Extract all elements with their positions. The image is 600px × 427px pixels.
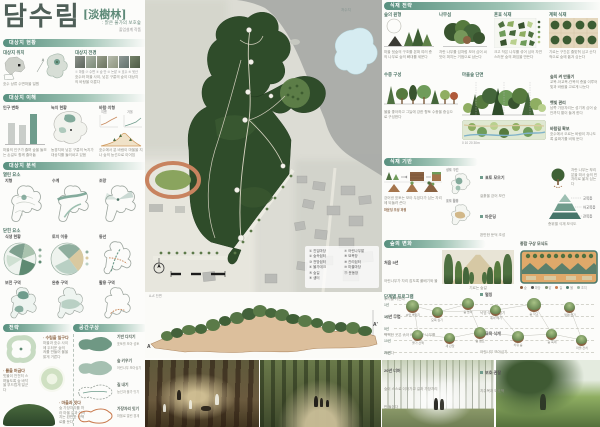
section-header-understanding: 대상지 이해 xyxy=(3,94,147,102)
zone-map-buffer xyxy=(50,286,92,322)
program-node xyxy=(406,300,419,313)
step-1-map xyxy=(75,334,115,354)
species-caption: 물을 좋아하고 그늘에 강한 향토 수종을 중심으로 구성한다 xyxy=(384,110,456,119)
step-4-map xyxy=(75,406,115,426)
program-node-label: 치유 숲 xyxy=(503,343,533,347)
left-column: 담수림 [淡樹林] : 맑은 물가의 보호숲 졸업설계 작품 대상지 현황 대상… xyxy=(3,2,143,425)
village-forest-scale: 0 10 20 30m xyxy=(462,141,546,145)
circulation-map xyxy=(97,240,139,278)
layer-pyramid-diagram: 교목층 아교목층 관목층 xyxy=(548,192,598,220)
legend-dot xyxy=(555,286,558,289)
korea-map xyxy=(3,56,33,80)
map-legend: ① 진입마당 ② 숲속쉼터 ③ 전망쉼터 ④ 물가데크 ⑤ 숲길 ⑥ 샘터 ⑦ … xyxy=(305,246,379,288)
section-header-analysis: 대상지 분석 xyxy=(3,162,147,170)
mosaic-legend-item: 마당 xyxy=(531,286,541,290)
program-node xyxy=(462,298,474,310)
bullet-square-icon xyxy=(480,215,483,218)
bullet-square-icon xyxy=(480,371,483,374)
note-text: 남쪽 가장자리는 성기게 심어 숲 안까지 볕이 들게 한다 xyxy=(550,106,598,115)
chart1-caption: 마을의 인구가 줄며 숲을 돌보는 손길도 함께 줄어듦 xyxy=(3,148,47,157)
program-node-label: 새 관찰 xyxy=(435,344,465,348)
allee-tree xyxy=(482,272,487,284)
program-node xyxy=(576,335,587,346)
title-block: 담수림 [淡樹林] : 맑은 물가의 보호숲 졸업설계 작품 xyxy=(3,2,143,36)
pyramid-caption: 층위별 식재 모식도 xyxy=(548,222,598,227)
program-node-label: 솎아 베기 xyxy=(481,316,511,320)
program-node-label: 숲 축제 xyxy=(537,340,567,344)
bullet-title: 보호·관찰 xyxy=(485,370,501,375)
site-photo-strip xyxy=(75,56,141,68)
lake-label: 저수지 xyxy=(341,8,351,13)
grid-planting-plan xyxy=(549,18,598,48)
para-title: 20년 너머 xyxy=(384,368,401,373)
figure xyxy=(326,400,329,407)
design-board: 담수림 [淡樹林] : 맑은 물가의 보호숲 졸업설계 작품 대상지 현황 대상… xyxy=(0,0,600,427)
analysis-map-view xyxy=(97,184,139,224)
section-marker-a: A xyxy=(147,344,151,350)
site-photo xyxy=(75,56,85,68)
program-node-label: 숲 학교 xyxy=(519,312,549,316)
analysis-map-water xyxy=(50,184,92,224)
allee-tree xyxy=(494,261,501,284)
transplant-note: 자란 나무는 뿌리분을 떠서 숲의 빈자리로 옮겨 심는다 xyxy=(571,168,598,187)
figure xyxy=(163,404,166,412)
wind-chart-summer xyxy=(99,114,119,128)
fill-zone-map xyxy=(446,173,476,195)
program-node xyxy=(474,327,486,339)
strategy-1-text: 마을과 호수 사이에 두터운 숲의 켜를 만들어 물을 맑게 거른다 xyxy=(43,341,69,360)
legend-dot xyxy=(531,286,534,289)
site-photo xyxy=(97,56,107,68)
program-node xyxy=(412,330,423,341)
step-2-label: 숲 키우기 xyxy=(117,359,143,364)
section-header-strategy: 전략 xyxy=(3,324,73,332)
allee-tree xyxy=(487,267,493,284)
step-3-label: 길 내기 xyxy=(117,383,143,388)
allee-caption: 기르는 숲길 xyxy=(442,286,514,291)
step-1-note: 표토를 모아 성토 xyxy=(117,341,143,346)
bullet-title: 마운딩 xyxy=(485,214,496,219)
panel-caption: 크고 작은 나무를 섞어 심어 자연스러운 숲의 짜임을 만든다 xyxy=(494,50,544,59)
allee-perspective xyxy=(442,250,514,284)
poster-subtitle: : 맑은 물가의 보호숲 xyxy=(73,20,141,26)
chart2-caption: 농경지와 낮은 구릉의 녹지가 대상지를 둘러싸고 있음 xyxy=(51,148,95,157)
step-2-map xyxy=(75,358,115,378)
panel-caption: 마을 뒷숲의 구조를 본떠 여러 층의 나무로 숲의 뼈대를 세운다 xyxy=(384,50,434,59)
bullet-title: 표토 모으기 xyxy=(485,175,505,180)
village-forest-plan xyxy=(462,120,546,140)
deer-figure xyxy=(201,406,211,411)
wind-chart-winter xyxy=(123,114,143,128)
bullet-item: 보호·관찰지주목과 보호책 xyxy=(480,361,544,397)
mosaic-plan xyxy=(520,250,598,284)
site-photo xyxy=(108,56,118,68)
tree-island-illustration xyxy=(439,18,489,48)
zone-map-preserve xyxy=(3,286,45,322)
program-node xyxy=(546,329,557,340)
bullet-item: 표토 모으기겉흙을 걷어 보관 xyxy=(480,166,544,202)
render-bg xyxy=(260,360,381,427)
section-header-forest-change: 숲의 변화 xyxy=(384,240,486,248)
poster-title: 담수림 xyxy=(3,4,81,30)
note-text: 호수에서 오르는 바람이 지나도록 골짜기를 비워 둔다 xyxy=(550,132,598,141)
topsoil-map-title: 표토 활용 xyxy=(446,199,459,203)
transplant-tree-icon xyxy=(548,168,568,188)
region-map xyxy=(45,52,71,80)
pyramid-label: 아교목층 xyxy=(583,205,595,210)
section-header-planting-strategy: 식재 전략 xyxy=(384,2,600,10)
site-photo xyxy=(86,56,96,68)
pyramid-label: 교목층 xyxy=(583,196,592,201)
forest-archetype-sketch xyxy=(384,18,434,48)
strategy-water-circle xyxy=(39,366,65,392)
note-text: 교목-아교목-관목의 층을 이루어 빛과 바람을 고르게 나눈다 xyxy=(550,80,598,89)
overall-diagram-label: 종합 구상 모식도 xyxy=(520,241,548,247)
zone-map-use xyxy=(97,286,139,322)
program-node-label: 숲 놀이 xyxy=(453,310,483,314)
topsoil-zone-map xyxy=(446,204,476,226)
mosaic-legend-item: 초지 xyxy=(577,286,587,290)
landuse-circle-map xyxy=(50,240,90,278)
site-section: A-A' 단면 A A' xyxy=(145,292,382,358)
village-forest-elevation xyxy=(462,78,546,118)
analysis-map-terrain xyxy=(3,184,45,224)
fill-map-title: 성토 구간 xyxy=(446,168,459,172)
program-node xyxy=(490,305,501,316)
site-photo-tags: ① 마을 ② 수변 ③ 숲 안 ④ 논밭 ⑤ 호수 ⑥ 뒷산 xyxy=(75,70,141,74)
step-4-label: 가장자리 잇기 xyxy=(117,407,143,412)
site-location-caption: 호수 상류 수변마을 일원 xyxy=(3,82,69,87)
render-bg xyxy=(145,360,259,427)
step-3-map xyxy=(75,382,115,402)
bar xyxy=(30,114,37,144)
program-node-label: 숲 캠프 xyxy=(465,339,495,343)
program-node xyxy=(444,333,455,344)
bullet-item: 마운딩완만한 둔덕 조성 xyxy=(480,205,544,241)
legend-dot xyxy=(577,286,580,289)
ridge-profile xyxy=(99,130,143,147)
program-node xyxy=(512,331,524,343)
greenery-map xyxy=(51,110,93,146)
section-elevation xyxy=(145,296,382,354)
mosaic-legend-item: 물 xyxy=(566,286,573,290)
strategy-forest-mound xyxy=(3,404,55,426)
topsoil-diagram xyxy=(384,168,442,194)
allee-tree xyxy=(503,254,512,284)
figure xyxy=(177,390,181,400)
legend-item: ⑥ 샘터 xyxy=(309,276,340,281)
bullet-text: 지주목과 보호책 xyxy=(480,389,504,393)
step-4-note: 마을로 열린 경계 xyxy=(117,413,143,418)
mosaic-legend: 숲 마당 밭 길 물 초지 xyxy=(520,286,598,290)
figure xyxy=(314,396,318,407)
para-title: 처음 5년 xyxy=(384,260,398,265)
site-photo xyxy=(119,56,129,68)
poster-byline: 졸업설계 작품 xyxy=(73,28,141,33)
right-column: 식재 전략 숲의 원형 마을 뒷숲의 구조를 본떠 여러 층의 나무로 숲의 뼈… xyxy=(384,0,598,360)
figure xyxy=(320,398,323,407)
program-node-label: 열매 줍기 xyxy=(555,313,585,317)
bullet-square-icon xyxy=(480,176,483,179)
mound-caption: 마운딩 조성 과정 xyxy=(384,208,442,212)
allee-tree xyxy=(455,261,462,284)
program-node-label: 물가 산책 xyxy=(403,341,433,345)
allee-tree xyxy=(444,254,453,284)
legend-dot xyxy=(520,286,523,289)
program-node-label: 씨앗 뿌리기 xyxy=(398,313,428,317)
site-photo xyxy=(130,56,140,68)
bullet-text: 완만한 둔덕 조성 xyxy=(480,233,505,237)
panel-caption: 자란 나무를 섬처럼 모아 심어 씨앗이 퍼지는 거점으로 삼는다 xyxy=(439,50,489,59)
site-view-caption: 호수와 마을 사이, 낮은 구릉의 숲이 대상지의 바탕을 이룬다 xyxy=(75,75,141,84)
pyramid-label: 관목층 xyxy=(583,214,592,219)
step-guide-line xyxy=(73,334,74,426)
masterplan: 저수지 ① 진입마당 ② 숲속쉼터 ③ 전망쉼터 ④ 물가데크 ⑤ 숲길 ⑥ 샘… xyxy=(145,0,382,292)
legend-dot xyxy=(566,286,569,289)
para-text: 숲이 스스로 이어가고 길과 가장자리만 돌본다 xyxy=(384,387,438,409)
figure xyxy=(215,394,219,405)
mosaic-legend-item: 밭 xyxy=(545,286,552,290)
mosaic-legend-item: 길 xyxy=(555,286,562,290)
section-marker-a2: A' xyxy=(373,322,378,328)
program-node-label: 마을 잔치 xyxy=(567,346,597,350)
mixed-planting-plan xyxy=(494,18,544,48)
step-1-label: 기반 다지기 xyxy=(117,335,143,340)
bullet-text: 겉흙을 걷어 보관 xyxy=(480,194,505,198)
program-node xyxy=(432,307,443,318)
legend-item: ⑪ 운동장 xyxy=(344,271,375,276)
section-header-spatial: 공간구상 xyxy=(73,324,147,332)
figure xyxy=(189,400,192,409)
program-network: 단계별 프로그램 1년 3년 5년 10년 20년 씨앗 뿌리기 xyxy=(384,294,598,358)
allee-tree xyxy=(469,272,474,284)
step-3-note: 능선과 물가 잇기 xyxy=(117,389,143,394)
bar xyxy=(8,123,15,144)
render-redwood-forest xyxy=(145,360,259,427)
panel-caption: 기르는 구간은 줄맞춰 심고 순차적으로 숲에 옮겨 심는다 xyxy=(549,50,598,59)
topsoil-caption: 걷어낸 표토는 모아 두었다가 심는 자리에 되돌려 쓴다 xyxy=(384,196,442,205)
strategy-2-text: 빗물이 천천히 스며들도록 숲 바닥을 부드럽게 일군다 xyxy=(3,374,31,393)
strategy-ring-diagram xyxy=(3,334,39,364)
population-bar-chart xyxy=(5,110,45,145)
program-node xyxy=(564,302,575,313)
chart3-caption: 호수에서 분 바람이 마을을 지나 숲의 능선으로 이어짐 xyxy=(99,148,143,157)
program-node-label: 묘목 심기 xyxy=(422,318,452,322)
vegetation-circle-map xyxy=(3,240,43,278)
section-header-site-status: 대상지 현황 xyxy=(3,39,147,47)
species-elevation xyxy=(384,78,458,108)
figure xyxy=(440,399,444,410)
mosaic-legend-item: 숲 xyxy=(520,286,527,290)
section-header-planting-base: 식재 기반 xyxy=(384,158,478,166)
render-forest-path xyxy=(260,360,381,427)
step-2-note: 어린나무 모아심기 xyxy=(117,365,143,370)
program-node xyxy=(527,298,541,312)
bar xyxy=(19,125,26,144)
